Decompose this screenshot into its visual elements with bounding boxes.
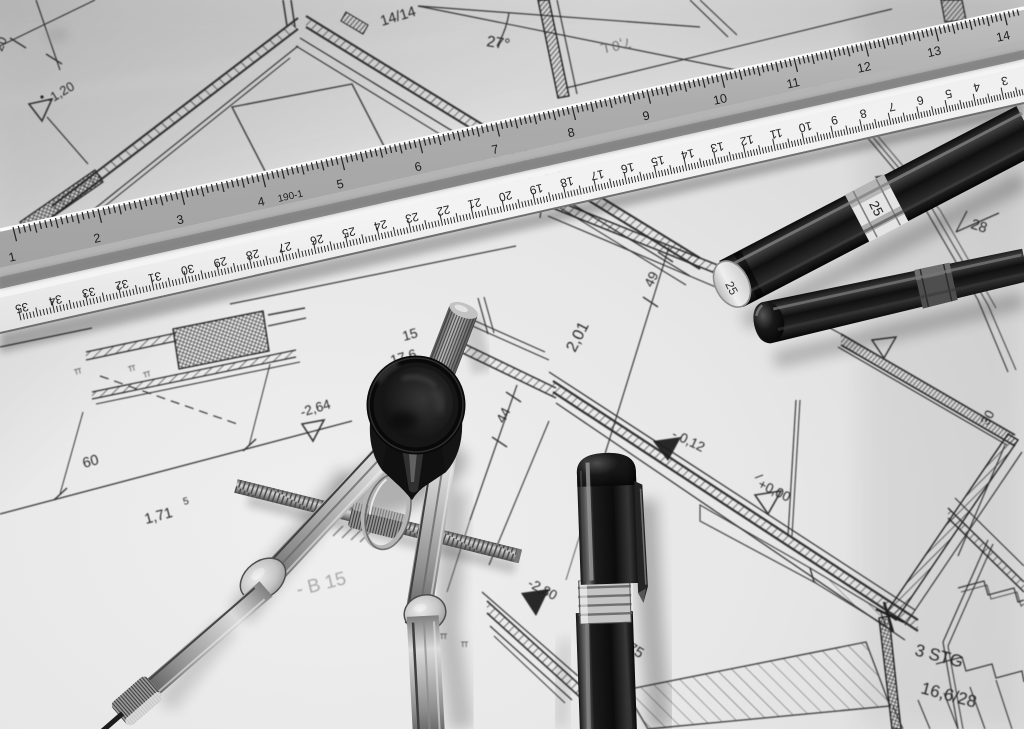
svg-text:27°: 27°	[485, 33, 511, 53]
